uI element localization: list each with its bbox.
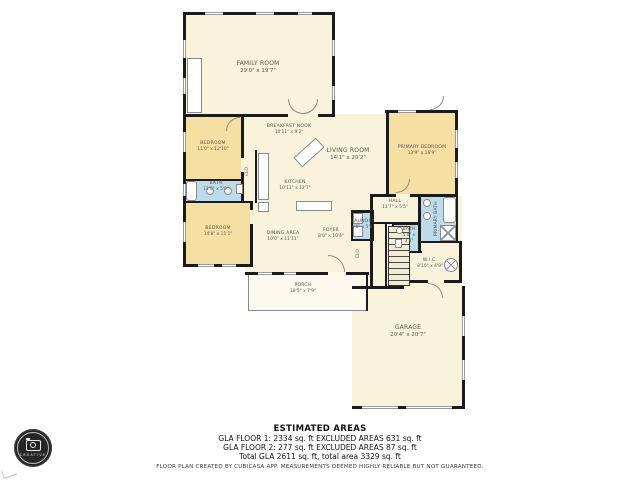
wall (183, 264, 253, 267)
window (298, 12, 312, 15)
room-label-bedroom2: BEDROOM14'8" x 11'1" (185, 226, 251, 238)
window (332, 86, 335, 100)
window (284, 272, 296, 275)
room-label-kitchen: KITCHEN10'11" x 12'7" (262, 180, 328, 192)
window (462, 360, 465, 380)
closet-label: CLO. (245, 166, 250, 176)
window (332, 40, 335, 56)
window (183, 40, 186, 58)
fireplace (187, 58, 202, 113)
wall (366, 272, 368, 311)
wall (385, 222, 387, 288)
photographer-logo: CREATIVE (14, 429, 52, 467)
door-opening (241, 158, 244, 172)
wall (459, 241, 462, 283)
wall (352, 286, 404, 289)
room-label-hall: HALL11'7" x 5'5" (374, 199, 416, 211)
wall (418, 241, 460, 243)
window (256, 12, 274, 15)
door-opening (396, 194, 410, 197)
estimated-areas-title: ESTIMATED AREAS (0, 424, 640, 434)
wall (332, 12, 335, 117)
floor-plan-page: { "rooms": { "family": {"name":"FAMILY R… (0, 0, 640, 480)
garage-floor (352, 288, 464, 408)
room-label-bath1: BATH11'0" x 5'0" (196, 181, 236, 193)
door-opening (288, 114, 318, 117)
disclaimer-text: FLOOR PLAN CREATED BY CUBICASA APP. MEAS… (0, 464, 640, 470)
wall (385, 110, 458, 113)
window (183, 78, 186, 94)
room-label-porch: PORCH18'5" x 7'9" (263, 283, 343, 295)
refrigerator (258, 202, 269, 212)
door-opening (328, 272, 346, 275)
garage-door (406, 406, 452, 409)
garage-door (362, 406, 398, 409)
window (455, 162, 458, 178)
camera-icon (26, 440, 41, 451)
room-label-family: FAMILY ROOM29'0" x 19'7" (203, 60, 313, 75)
room-label-laundry: LAUNDRY4'0" x 5'8" (345, 219, 381, 231)
window (205, 12, 223, 15)
gla-floor1-line: GLA FLOOR 1: 2334 sq. ft EXCLUDED AREAS … (0, 434, 640, 443)
gla-floor2-line: GLA FLOOR 2: 277 sq. ft EXCLUDED AREAS 8… (0, 443, 640, 452)
window (222, 264, 236, 267)
toilet (236, 184, 243, 194)
room-label-primary-bath: PRIMARY BATH (427, 198, 437, 240)
room-label-bedroom1: BEDROOM11'0" x 12'10" (184, 141, 242, 153)
closet-label: CLO. (356, 248, 361, 258)
room-label-breakfast: BREAKFAST NOOK10'11" x 9'2" (249, 124, 329, 136)
wall (370, 194, 373, 288)
window (462, 316, 465, 336)
room-label-bath2: BATH5'0" x 3'8" (398, 227, 420, 244)
floor-plan: FAMILY ROOM29'0" x 19'7" BREAKFAST NOOK1… (0, 0, 640, 480)
door-opening (250, 210, 253, 224)
total-gla-line: Total GLA 2611 sq. ft, total area 3329 s… (0, 452, 640, 461)
wall (255, 150, 257, 203)
kitchen-counter (296, 201, 332, 211)
room-label-wic: W.I.C.8'10" x 4'9" (402, 258, 458, 270)
room-label-garage: GARAGE20'4" x 20'7" (368, 324, 448, 339)
window (258, 272, 272, 275)
room-label-primary-bedroom: PRIMARY BEDROOM13'9" x 16'9" (387, 145, 457, 157)
room-label-living: LIVING ROOM14'1" x 20'2" (313, 147, 383, 162)
kitchen-counter (258, 153, 269, 200)
window (398, 110, 416, 113)
window (198, 264, 214, 267)
wall (183, 12, 186, 117)
wall (462, 286, 465, 409)
door-arc (430, 96, 444, 110)
